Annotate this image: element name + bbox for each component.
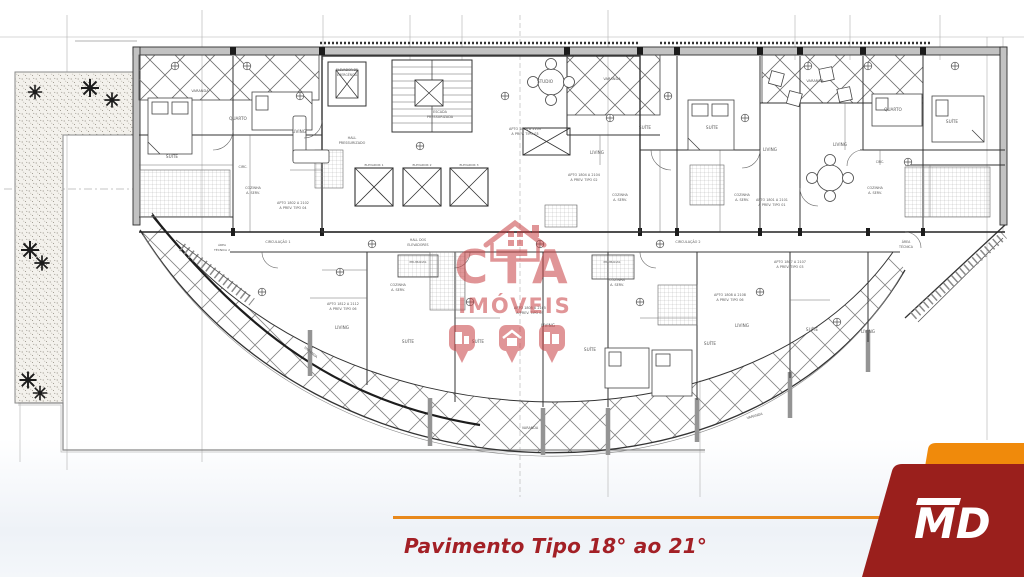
room-label: A. SERV. [246, 191, 260, 195]
room-label: ELEVADORES [407, 243, 428, 247]
room-label: VARANDA [522, 426, 539, 430]
md-logo-text: MD [914, 499, 991, 548]
map-pin-icon [539, 325, 565, 363]
terrace-garden [15, 41, 137, 403]
room-label: COZINHA [245, 186, 261, 190]
room-label: APTO 1807 A 2107 [774, 260, 806, 264]
room-label: LIVING [292, 129, 306, 134]
room-label: PRUMADAS [410, 260, 427, 264]
room-label: COZINHA [734, 193, 750, 197]
room-label: SUÍTE [806, 327, 819, 332]
room-label: A PREV. TIPO 03 [511, 132, 538, 136]
md-logo: MD [914, 498, 991, 548]
page-title: Pavimento Tipo 18° ao 21° [404, 534, 707, 558]
room-label: LIVING [590, 150, 604, 155]
brand-ribbon: MD [854, 437, 1024, 577]
room-label: A. SERV. [613, 198, 627, 202]
room-label: COZINHA [867, 186, 883, 190]
room-label: LIVING [735, 323, 749, 328]
watermark-title: CTA [454, 240, 575, 294]
room-label: PRESSURIZADA [427, 115, 454, 119]
room-label: COZINHA [390, 283, 406, 287]
room-label: COZINHA [609, 278, 625, 282]
agency-watermark: CTA IMÓVEIS [440, 205, 590, 370]
room-label: ELEVADOR 3 [460, 163, 479, 167]
room-label: APTO 1804 A 2104 [568, 173, 600, 177]
room-label: LIVING [335, 325, 349, 330]
room-label: ÁREA [218, 242, 227, 247]
page: VARANDASUÍTEQUARTOLIVINGCIRC.COZINHAA. S… [0, 0, 1024, 577]
room-label: A PREV. TIPO 04 [279, 206, 306, 210]
room-label: ÁREA [902, 239, 911, 244]
room-label: APTO 1802 A 2102 [277, 201, 309, 205]
room-label: EMERGÊNCIA [337, 72, 358, 77]
room-label: ESCADA [433, 110, 448, 114]
room-label: A. SERV. [391, 288, 405, 292]
room-label: A PREV. TIPO 01 [758, 203, 785, 207]
room-label: TÉCNICA [898, 244, 914, 249]
room-label: APTO 1808 A 2108 [714, 293, 746, 297]
room-label: HALL DOS [410, 238, 426, 242]
room-label: TÉCNICA 2 [213, 247, 230, 252]
room-label: A. SERV. [610, 283, 624, 287]
room-label: A. SERV. [735, 198, 749, 202]
room-label: CIRC. [876, 160, 884, 164]
room-label: APTO 1801 A 2101 [756, 198, 788, 202]
map-pin-icon [449, 325, 475, 363]
elevator-bank [355, 168, 488, 206]
room-label: ELEVADOR 2 [413, 163, 432, 167]
room-label: A PREV. TIPO 02 [570, 178, 597, 182]
room-label: A PREV. TIPO 06 [716, 298, 743, 302]
room-label: VARANDA [191, 89, 209, 93]
room-label: PRUMADAS [604, 260, 621, 264]
room-label: A PREV. TIPO 03 [776, 265, 803, 269]
room-label: SUÍTE [166, 154, 179, 159]
room-label: CIRCULAÇÃO 2 [675, 239, 700, 244]
room-label: ELEVADOR 1 [365, 163, 384, 167]
room-label: QUARTO [229, 116, 247, 121]
room-label: SUÍTE [639, 125, 652, 130]
room-label: VARANDA [603, 77, 621, 81]
room-label: LIVING [833, 142, 847, 147]
room-label: APTO 1812 A 2112 [327, 302, 359, 306]
room-label: CIRCULAÇÃO 1 [265, 239, 290, 244]
room-label: SUÍTE [946, 119, 959, 124]
room-label: LIVING [861, 329, 875, 334]
map-pin-icon [499, 325, 525, 363]
watermark-subtitle: IMÓVEIS [458, 293, 572, 318]
room-label: HALL [348, 136, 357, 140]
room-label: SUÍTE [402, 339, 415, 344]
room-label: SUÍTE [704, 341, 717, 346]
watermark-pin-icons [449, 325, 565, 363]
room-label: STUDIO [537, 79, 554, 84]
room-label: COZINHA [612, 193, 628, 197]
room-label: PRESSURIZADO [339, 141, 366, 145]
room-label: APTO 1803 A 2103 [509, 127, 541, 131]
room-label: QUARTO [884, 107, 902, 112]
room-label: ELEVADOR DE [336, 68, 358, 72]
room-label: VARANDA [806, 79, 824, 83]
room-label: SUÍTE [706, 125, 719, 130]
room-label: A. SERV. [868, 191, 882, 195]
room-label: CIRC. [239, 165, 248, 169]
room-label: LIVING [763, 147, 777, 152]
room-label: A PREV. TIPO 06 [329, 307, 356, 311]
